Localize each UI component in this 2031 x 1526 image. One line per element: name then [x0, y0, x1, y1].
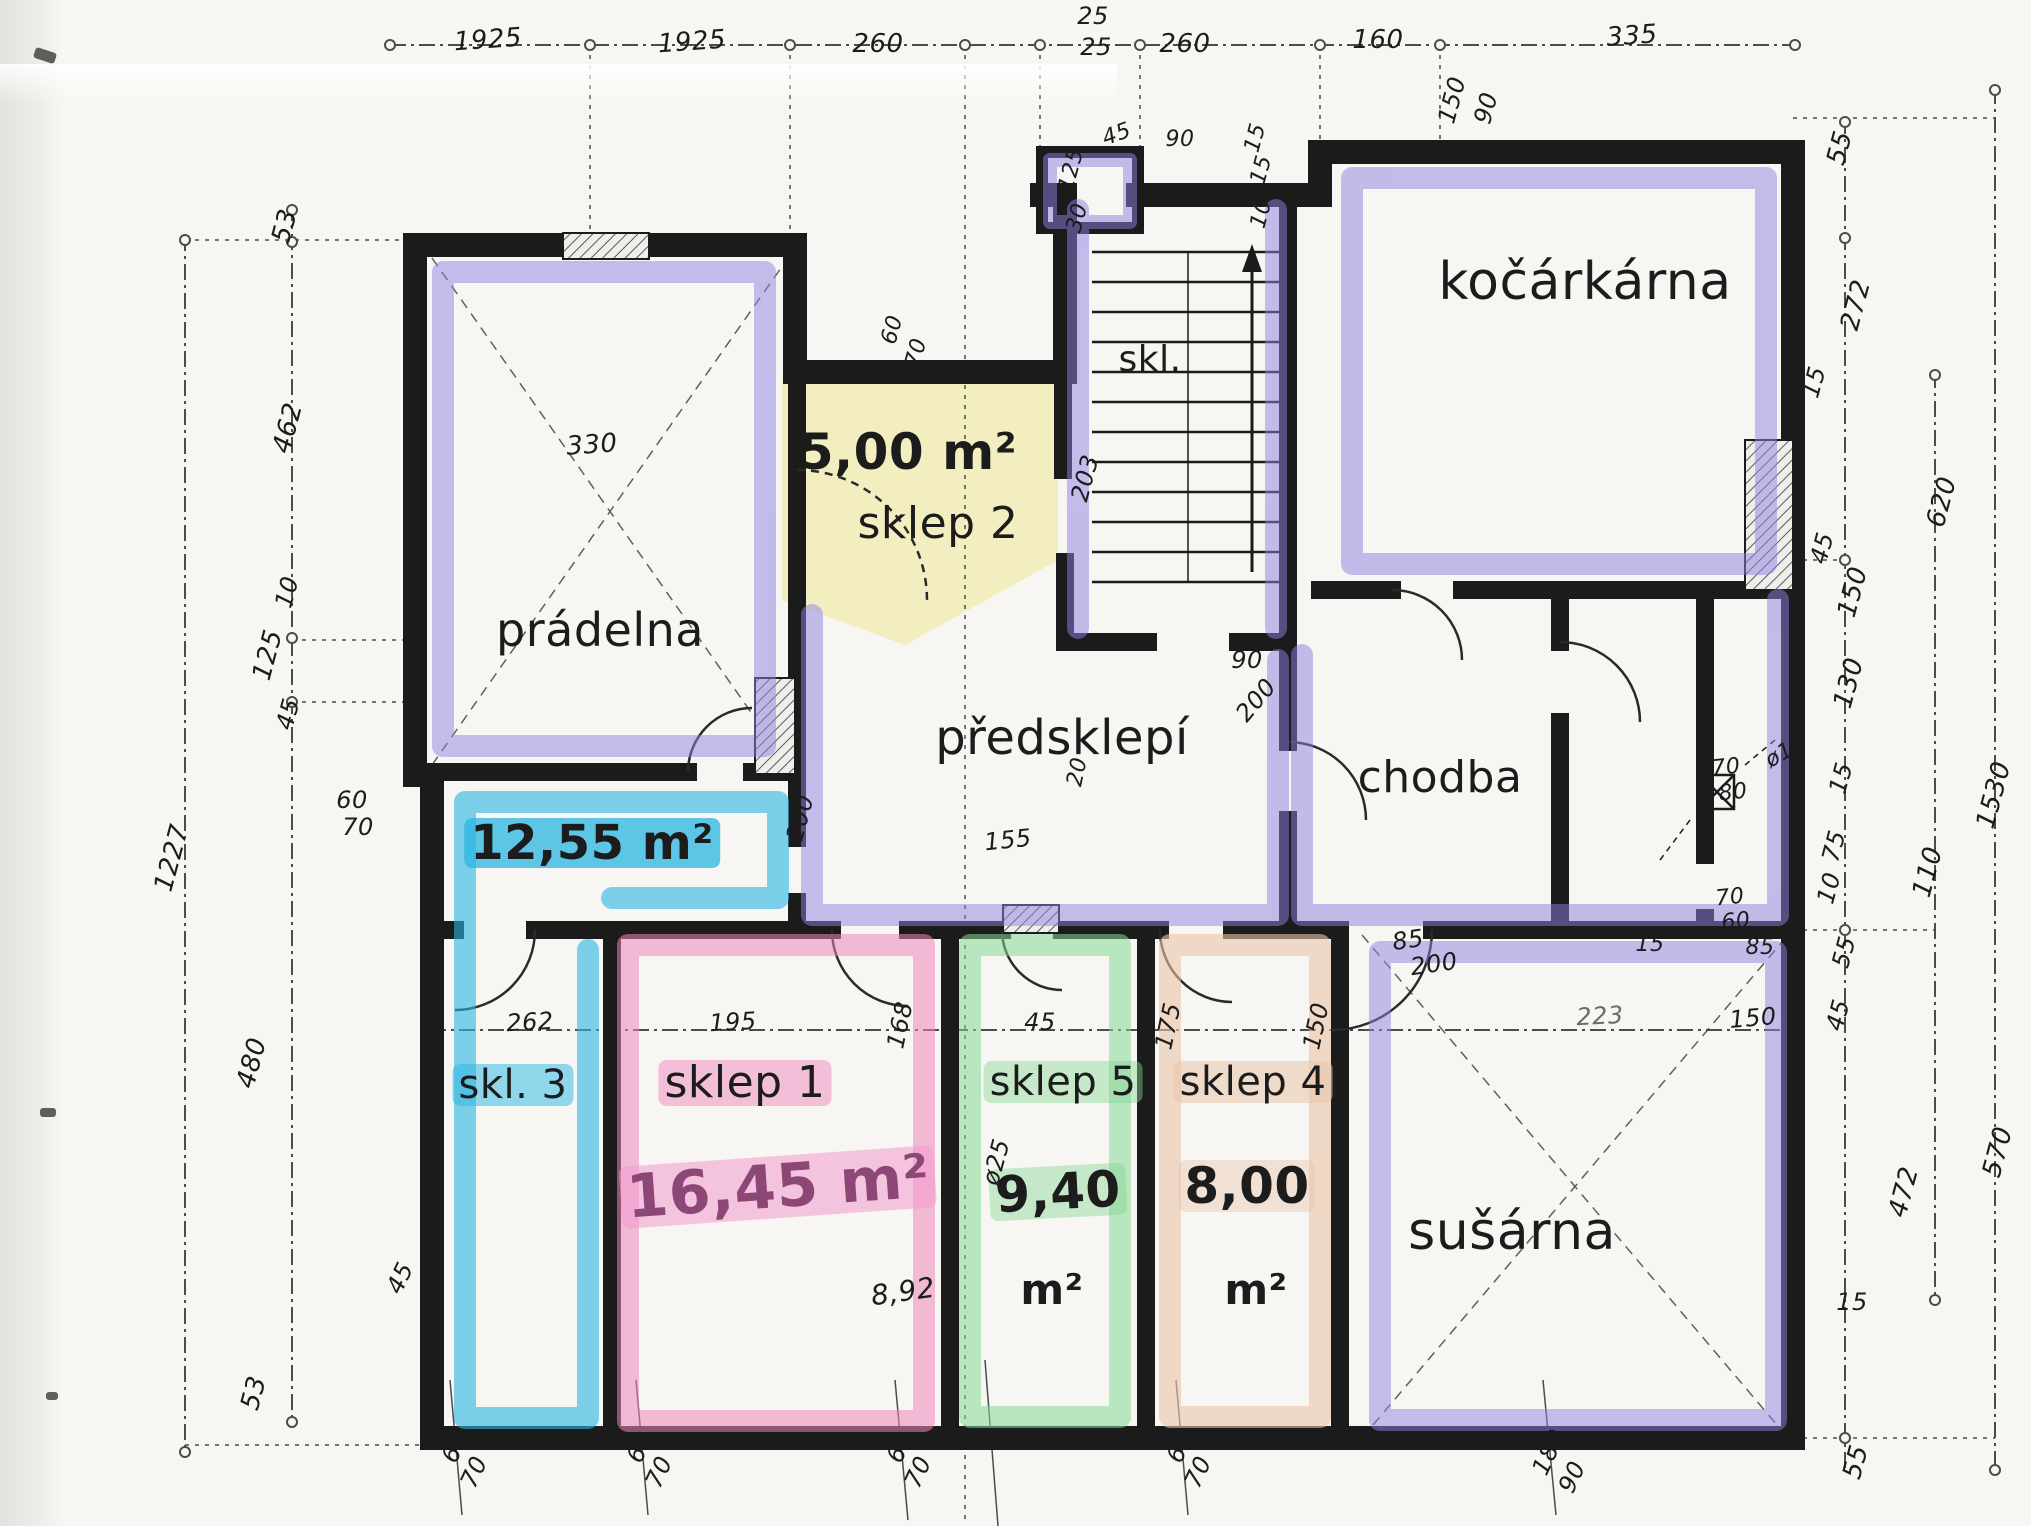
- area-sklep2: 5,00 m²: [793, 426, 1023, 478]
- dim-label-42-60: 60: [330, 787, 374, 813]
- dim-label-25-25: 25: [1074, 34, 1118, 60]
- room-sklep1: sklep 1: [658, 1060, 831, 1106]
- dim-label-77-620: 620: [1920, 468, 1963, 536]
- dim-label-21-1925: 1925: [447, 23, 529, 57]
- dim-label-32-90: 90: [1160, 128, 1201, 152]
- dim-label-52-45: 45: [1018, 1009, 1062, 1035]
- room-susarna: sušárna: [1402, 1205, 1622, 1259]
- dim-label-27-160: 160: [1346, 26, 1409, 54]
- room-predsklepi: předsklepí: [929, 713, 1195, 763]
- dim-label-54-150: 150: [1297, 994, 1335, 1057]
- dim-label-73-60: 60: [1714, 908, 1757, 936]
- dim-label-58-203: 203: [1065, 446, 1105, 510]
- dim-label-39-462: 462: [266, 394, 309, 462]
- room-chodba: chodba: [1352, 755, 1529, 801]
- dim-label-70-70: 70: [1704, 754, 1747, 782]
- dim-label-26-260: 260: [1153, 30, 1216, 58]
- dim-label-57-330: 330: [560, 429, 625, 461]
- area-sklep4: 8,00: [1178, 1160, 1315, 1212]
- room-sklep5: sklep 5: [984, 1061, 1143, 1103]
- dim-label-50-195: 195: [703, 1007, 764, 1036]
- dim-label-31-45: 45: [1094, 117, 1141, 154]
- dim-label-68-15: 15: [1630, 933, 1671, 957]
- floorplan-scan: prádelna5,00 m²sklep 2skl.kočárkárnapřed…: [0, 0, 2031, 1526]
- dim-label-55-223: 223: [1570, 1001, 1631, 1030]
- dim-label-80-130: 130: [1827, 649, 1870, 717]
- area-sklep5-unit: m²: [1014, 1268, 1089, 1312]
- dim-label-34-125: 125: [1053, 140, 1091, 200]
- dim-label-36-10: 10: [1245, 191, 1279, 237]
- dim-label-28-335: 335: [1600, 20, 1665, 52]
- dim-label-85-45: 45: [1820, 991, 1856, 1040]
- dim-label-18-8,92: 8,92: [863, 1272, 943, 1312]
- room-sklep4: sklep 4: [1174, 1061, 1333, 1103]
- dim-label-79-150: 150: [1831, 558, 1874, 626]
- dim-label-91-55: 55: [1837, 1436, 1876, 1488]
- dim-label-61-90: 90: [1225, 647, 1269, 673]
- dim-label-37-30: 30: [1061, 195, 1095, 241]
- labels-layer: prádelna5,00 m²sklep 2skl.kočárkárnapřed…: [0, 0, 2031, 1526]
- dim-label-30-90: 90: [1468, 84, 1504, 133]
- dim-label-87-1530: 1530: [1970, 753, 2018, 838]
- dim-label-45-480: 480: [230, 1029, 273, 1097]
- dim-label-48-45: 45: [379, 1253, 421, 1303]
- room-pradelna: prádelna: [490, 606, 710, 654]
- dim-label-22-1925: 1925: [651, 25, 733, 59]
- dim-label-90-15: 15: [1830, 1289, 1874, 1315]
- dim-label-41-125: 125: [246, 621, 289, 689]
- dim-label-78-45: 45: [1804, 524, 1840, 573]
- dim-label-40-10: 10: [269, 568, 305, 617]
- dim-label-88-570: 570: [1976, 1118, 2019, 1186]
- dim-label-74-55: 55: [1821, 122, 1860, 174]
- dim-label-75-272: 272: [1834, 271, 1877, 339]
- dim-label-67-200: 200: [1403, 947, 1465, 981]
- room-skl: skl.: [1112, 341, 1187, 379]
- dim-label-76-15: 15: [1796, 358, 1832, 407]
- area-sklep5: 9,40: [988, 1162, 1128, 1221]
- dim-label-53-175: 175: [1149, 994, 1187, 1057]
- dim-label-24-25: 25: [1071, 3, 1115, 29]
- dim-label-86-110: 110: [1906, 838, 1949, 906]
- room-kocarkarna: kočárkárna: [1432, 255, 1737, 309]
- area-sklep4-unit: m²: [1218, 1268, 1293, 1312]
- dim-label-46-53: 53: [235, 1367, 274, 1419]
- dim-label-81-15: 15: [1823, 754, 1859, 803]
- area-skl3: 12,55 m²: [464, 818, 720, 868]
- dim-label-64-100: 100: [780, 786, 820, 850]
- dim-label-60-70: 70: [900, 330, 934, 376]
- dim-label-43-70: 70: [336, 814, 380, 840]
- dim-label-69-85: 85: [1740, 936, 1781, 960]
- dim-label-23-260: 260: [846, 30, 909, 58]
- dim-label-56-150: 150: [1722, 1002, 1783, 1033]
- dim-label-44-45: 45: [270, 690, 306, 739]
- dim-label-38-53: 53: [266, 200, 305, 252]
- dim-label-89-472: 472: [1882, 1158, 1925, 1226]
- dim-label-83-10: 10: [1811, 864, 1847, 913]
- dim-label-29-150: 150: [1432, 68, 1472, 132]
- dim-label-20-ø10: ø10: [1756, 728, 1816, 776]
- dim-label-82-75: 75: [1816, 822, 1852, 871]
- dim-label-47-1227: 1227: [148, 816, 196, 901]
- dim-label-62-200: 200: [1227, 669, 1285, 731]
- dim-label-49-262: 262: [500, 1007, 561, 1036]
- dim-label-84-55: 55: [1826, 928, 1862, 977]
- dim-label-63-155: 155: [977, 824, 1039, 856]
- dim-label-51-168: 168: [881, 993, 919, 1056]
- dim-label-71-80: 80: [1711, 779, 1754, 807]
- room-sklep2: sklep 2: [851, 501, 1024, 547]
- room-skl3: skl. 3: [453, 1064, 574, 1106]
- area-sklep1: 16,45 m²: [618, 1145, 937, 1229]
